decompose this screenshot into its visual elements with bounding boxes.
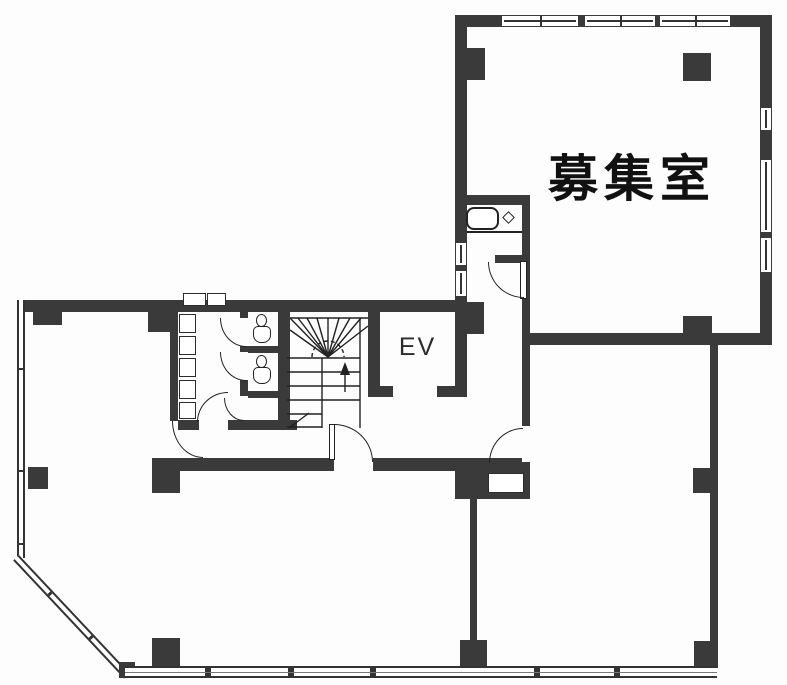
pipe-shaft-cell bbox=[179, 402, 196, 419]
wall-segment bbox=[18, 300, 467, 312]
pipe-shaft-cell bbox=[179, 314, 196, 333]
column bbox=[693, 468, 712, 493]
window bbox=[456, 271, 466, 296]
main-room-label: 募集室 bbox=[548, 139, 716, 211]
door-arc bbox=[197, 392, 228, 422]
sink-icon bbox=[466, 207, 499, 230]
door-arc bbox=[220, 318, 246, 347]
pipe-shaft-cell bbox=[179, 380, 196, 399]
window-wall bbox=[125, 666, 717, 678]
pipe-shaft-cell bbox=[179, 358, 196, 377]
window bbox=[502, 16, 578, 26]
wall-segment bbox=[368, 386, 393, 397]
column bbox=[28, 467, 48, 489]
floor-plan: EV 募集室 bbox=[0, 0, 787, 685]
door-gap bbox=[522, 426, 530, 462]
wall-segment bbox=[522, 333, 772, 345]
wall-segment bbox=[470, 497, 477, 643]
wall-segment bbox=[437, 386, 467, 397]
door-arc bbox=[488, 262, 524, 298]
shaft-window bbox=[488, 473, 524, 493]
window bbox=[761, 160, 771, 232]
wall-segment bbox=[455, 195, 530, 205]
wall-segment bbox=[170, 312, 178, 421]
window bbox=[761, 108, 771, 130]
window bbox=[761, 238, 771, 272]
column bbox=[460, 640, 487, 668]
column bbox=[694, 641, 717, 666]
window bbox=[660, 16, 730, 26]
window-wall bbox=[17, 300, 25, 558]
door-arc bbox=[489, 428, 523, 463]
elevator-label: EV bbox=[380, 312, 455, 382]
toilet-icon bbox=[251, 314, 273, 348]
window bbox=[183, 293, 206, 306]
wall-segment bbox=[368, 305, 380, 397]
column bbox=[33, 312, 62, 325]
up-arrow-head bbox=[340, 362, 350, 375]
wall-segment bbox=[710, 345, 718, 668]
diamond-marker bbox=[502, 211, 515, 224]
staircase bbox=[283, 312, 375, 430]
column bbox=[152, 638, 180, 666]
window bbox=[456, 243, 466, 265]
window-wall-diagonal bbox=[13, 555, 130, 679]
column bbox=[455, 48, 485, 80]
toilet-icon bbox=[251, 355, 273, 389]
window bbox=[585, 16, 655, 26]
pipe-shaft-cell bbox=[179, 336, 196, 355]
window bbox=[207, 293, 226, 306]
door-arc bbox=[172, 421, 203, 458]
column bbox=[683, 53, 711, 81]
column bbox=[683, 316, 712, 334]
counter-line bbox=[467, 231, 522, 233]
column bbox=[152, 466, 180, 493]
door-arc bbox=[220, 352, 246, 381]
